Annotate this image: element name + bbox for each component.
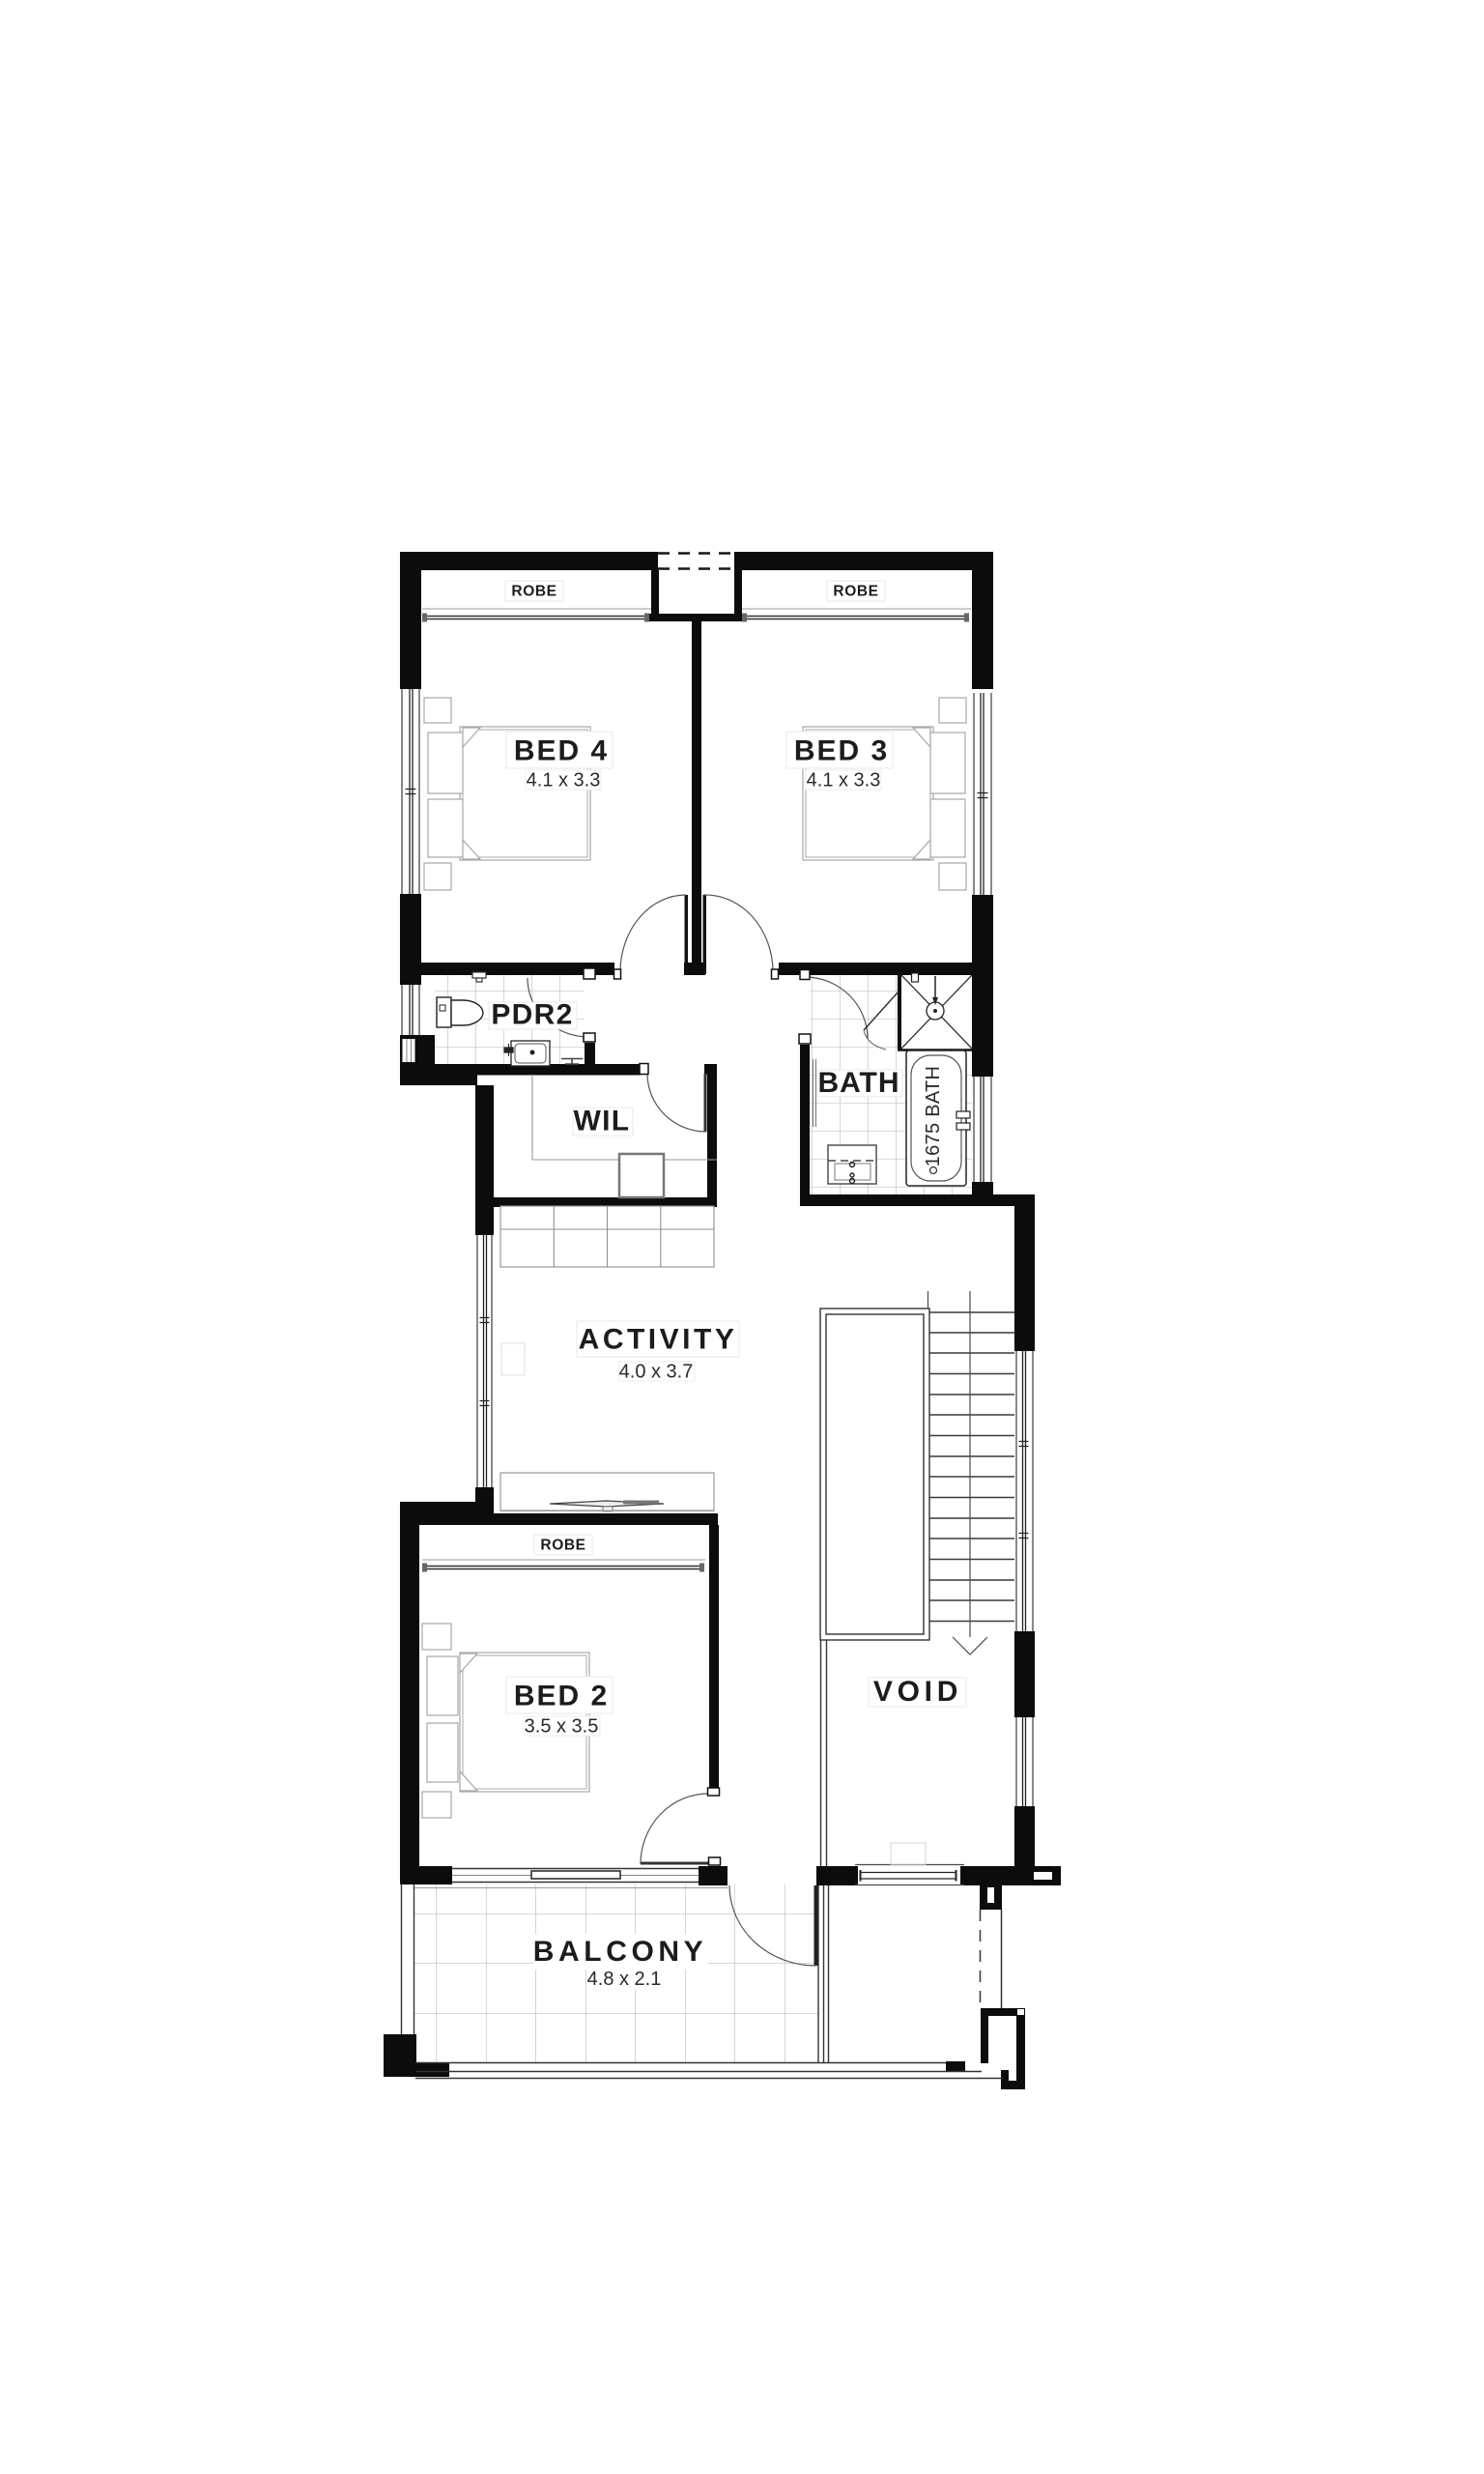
svg-text:1675 BATH: 1675 BATH — [923, 1066, 944, 1167]
svg-text:PDR2: PDR2 — [491, 999, 573, 1031]
svg-text:4.1 x 3.3: 4.1 x 3.3 — [807, 770, 881, 791]
svg-text:BALCONY: BALCONY — [533, 1936, 708, 1968]
svg-text:BED 4: BED 4 — [514, 735, 609, 767]
svg-text:3.5 x 3.5: 3.5 x 3.5 — [525, 1716, 599, 1738]
svg-text:WIL: WIL — [574, 1106, 631, 1137]
svg-text:ACTIVITY: ACTIVITY — [579, 1324, 738, 1356]
svg-text:BATH: BATH — [817, 1067, 899, 1099]
svg-text:4.0 x 3.7: 4.0 x 3.7 — [619, 1362, 694, 1383]
svg-text:BED 3: BED 3 — [794, 735, 889, 767]
svg-text:ROBE: ROBE — [540, 1538, 585, 1554]
svg-text:ROBE: ROBE — [833, 584, 878, 600]
svg-text:4.1 x 3.3: 4.1 x 3.3 — [527, 770, 601, 791]
svg-text:BED 2: BED 2 — [514, 1681, 609, 1712]
svg-text:ROBE: ROBE — [511, 584, 556, 600]
svg-text:VOID: VOID — [873, 1676, 962, 1708]
svg-text:4.8 x 2.1: 4.8 x 2.1 — [587, 1969, 662, 1990]
